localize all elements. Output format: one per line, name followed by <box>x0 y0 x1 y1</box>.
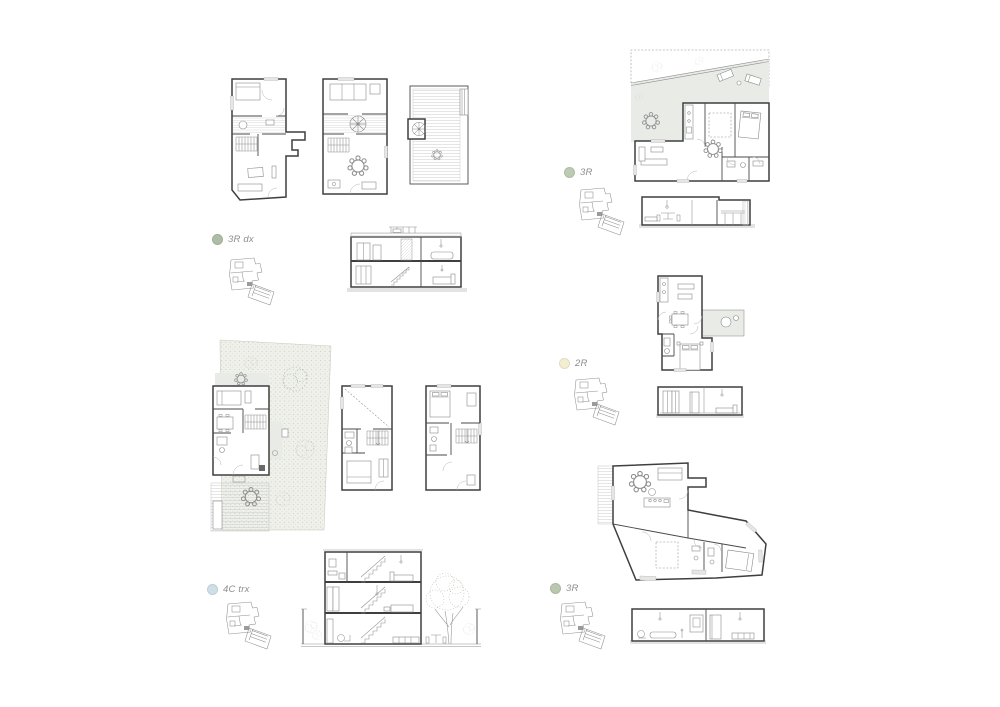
unit-color-dot-4c-trx <box>207 584 218 595</box>
key-plan-3r-bottom <box>542 600 608 652</box>
key-plan-4c-trx <box>208 600 274 652</box>
key-plan-drawing <box>556 376 622 428</box>
unit-label-text-4c-trx: 4C trx <box>223 584 250 595</box>
plan-3r-bottom-apartment <box>596 458 774 584</box>
unit-label-text-3r-top: 3R <box>580 167 593 178</box>
section-3r-top <box>637 189 757 230</box>
unit-color-dot-3r-dx <box>212 234 223 245</box>
section-4ctrx <box>299 547 483 653</box>
plan-3rdx-lower-floor <box>318 76 392 202</box>
plan-4ctrx-ground-garden <box>207 337 333 533</box>
key-plan-drawing <box>542 600 608 652</box>
unit-label-text-2r: 2R <box>575 358 588 369</box>
section-3r-bottom <box>628 601 768 649</box>
unit-color-dot-3r-bottom <box>550 583 561 594</box>
plan-4ctrx-upper-a <box>339 383 395 493</box>
unit-label-2r: 2R <box>559 357 588 369</box>
unit-label-3r-top: 3R <box>564 166 593 178</box>
key-plan-2r <box>556 376 622 428</box>
key-plan-3r-top <box>561 186 627 238</box>
unit-label-text-3r-dx: 3R dx <box>228 234 254 245</box>
key-plan-3r-dx <box>211 256 277 308</box>
unit-color-dot-3r-top <box>564 167 575 178</box>
plan-2r-apartment <box>650 272 750 373</box>
plan-3r-top-apartment <box>627 47 773 186</box>
key-plan-drawing <box>208 600 274 652</box>
unit-label-3r-dx: 3R dx <box>212 233 254 245</box>
key-plan-drawing <box>561 186 627 238</box>
architectural-sheet: 3R dx <box>0 0 1000 707</box>
plan-3rdx-upper-floor <box>228 76 308 206</box>
key-plan-drawing <box>211 256 277 308</box>
unit-label-text-3r-bottom: 3R <box>566 583 579 594</box>
plan-4ctrx-upper-b <box>423 383 483 493</box>
unit-label-4c-trx: 4C trx <box>207 583 250 595</box>
unit-label-3r-bottom: 3R <box>550 582 579 594</box>
section-2r <box>654 381 746 421</box>
plan-3rdx-roof-terrace <box>407 83 473 187</box>
section-3rdx <box>345 225 469 295</box>
unit-color-dot-2r <box>559 358 570 369</box>
